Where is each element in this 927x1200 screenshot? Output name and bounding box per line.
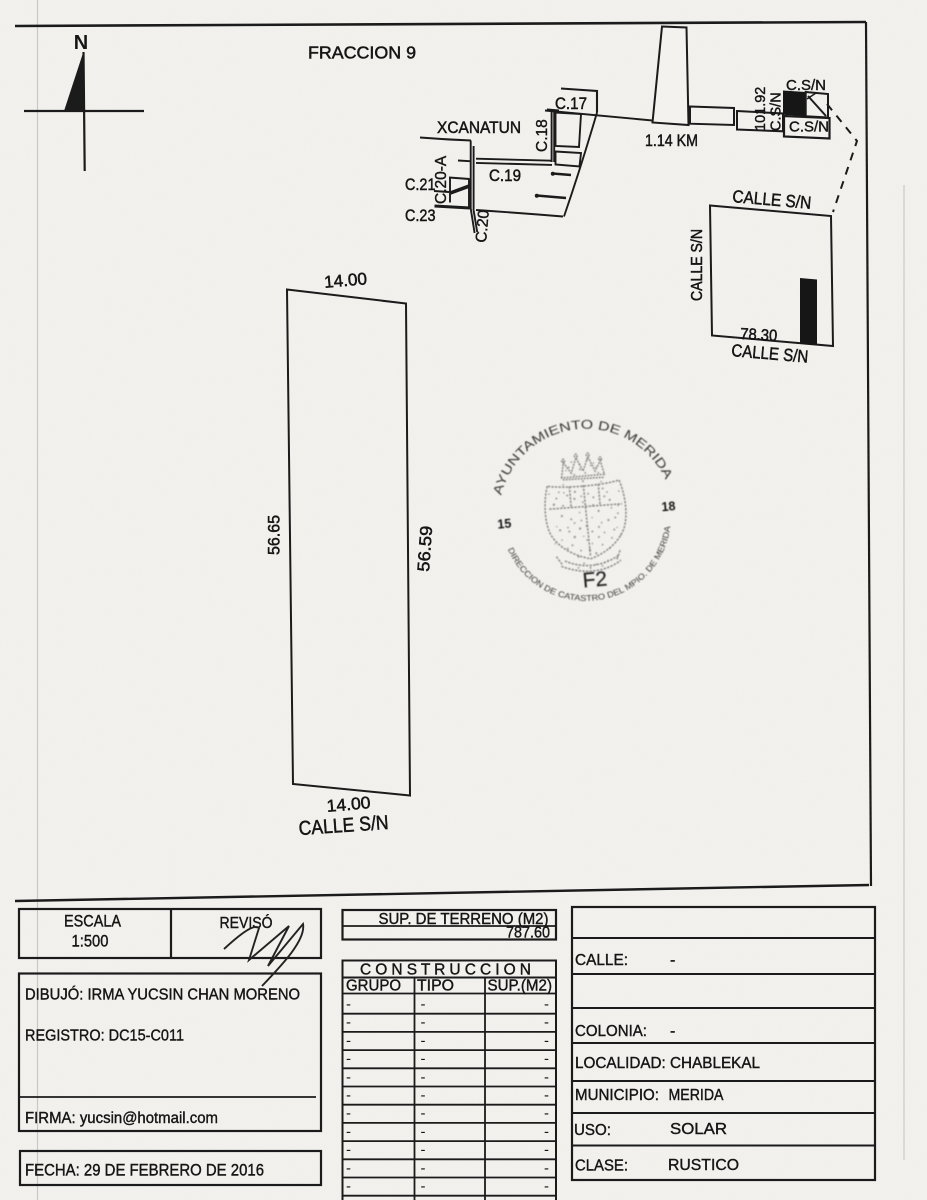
svg-text:56.65: 56.65 (265, 515, 284, 555)
svg-text:DIBUJÓ: IRMA YUCSIN CHAN MOREN: DIBUJÓ: IRMA YUCSIN CHAN MORENO (25, 985, 300, 1004)
svg-text:-: - (670, 952, 675, 969)
svg-text:-: - (421, 996, 426, 1013)
svg-text:RUSTICO: RUSTICO (668, 1157, 739, 1174)
svg-text:MUNICIPIO:: MUNICIPIO: (575, 1087, 659, 1104)
svg-text:-: - (670, 1023, 675, 1040)
svg-text:C.17: C.17 (555, 94, 587, 113)
svg-text:SUP.(M2): SUP.(M2) (488, 978, 553, 995)
svg-text:787.60: 787.60 (506, 925, 550, 942)
svg-text:-: - (346, 1160, 351, 1177)
svg-text:MERIDA: MERIDA (669, 1087, 724, 1104)
svg-text:1.14 KM: 1.14 KM (645, 132, 698, 150)
svg-text:-: - (346, 1032, 351, 1049)
svg-text:-: - (421, 1069, 426, 1086)
svg-text:C.19: C.19 (489, 166, 521, 185)
svg-text:-: - (346, 1178, 351, 1195)
svg-text:USO:: USO: (574, 1122, 611, 1139)
svg-text:ESCALA: ESCALA (64, 913, 121, 931)
svg-text:-: - (544, 1014, 549, 1031)
svg-text:-: - (421, 1014, 426, 1031)
svg-text:C.S/N: C.S/N (789, 119, 829, 136)
svg-text:C.20-A: C.20-A (433, 155, 450, 204)
svg-text:-: - (421, 1142, 426, 1159)
svg-text:-: - (544, 1123, 549, 1140)
svg-text:GRUPO: GRUPO (346, 978, 401, 995)
svg-text:-: - (346, 1069, 351, 1086)
svg-text:C.18: C.18 (534, 119, 551, 152)
svg-text:-: - (346, 996, 351, 1013)
svg-text:-: - (346, 1142, 351, 1159)
svg-text:-: - (544, 1069, 549, 1086)
svg-text:18: 18 (661, 499, 676, 514)
svg-text:C.S/N: C.S/N (769, 92, 785, 131)
svg-text:-: - (544, 1142, 549, 1159)
svg-text:-: - (544, 1032, 549, 1049)
svg-text:-: - (544, 1087, 549, 1104)
svg-text:-: - (346, 1051, 351, 1068)
svg-text:FRACCION 9: FRACCION 9 (308, 43, 416, 63)
svg-text:CLASE:: CLASE: (575, 1158, 628, 1175)
svg-text:-: - (544, 1178, 549, 1195)
svg-text:SOLAR: SOLAR (670, 1121, 727, 1138)
svg-text:15: 15 (497, 517, 512, 532)
svg-text:FIRMA: yucsin@hotmail.com: FIRMA: yucsin@hotmail.com (25, 1110, 218, 1127)
svg-text:TIPO: TIPO (417, 978, 454, 995)
svg-text:14.00: 14.00 (323, 269, 367, 292)
svg-text:REVISÓ: REVISÓ (220, 913, 273, 932)
svg-text:-: - (544, 1051, 549, 1068)
svg-text:-: - (421, 1123, 426, 1140)
svg-text:CALLE S/N: CALLE S/N (689, 229, 706, 301)
svg-text:FECHA: 29 DE FEBRERO DE 2016: FECHA: 29 DE FEBRERO DE 2016 (25, 1162, 264, 1180)
svg-text:REGISTRO: DC15-C011: REGISTRO: DC15-C011 (25, 1028, 184, 1045)
svg-text:-: - (421, 1032, 426, 1049)
svg-text:-: - (421, 1160, 426, 1177)
svg-text:14.00: 14.00 (326, 793, 371, 816)
svg-text:C.21: C.21 (405, 175, 436, 194)
svg-text:C.S/N: C.S/N (786, 77, 826, 94)
svg-text:-: - (346, 1014, 351, 1031)
svg-text:-: - (346, 1087, 351, 1104)
svg-text:-: - (421, 1051, 426, 1068)
svg-text:LOCALIDAD: CHABLEKAL: LOCALIDAD: CHABLEKAL (575, 1055, 760, 1072)
svg-text:-: - (544, 1160, 549, 1177)
svg-text:-: - (421, 1087, 426, 1104)
svg-text:-: - (421, 1178, 426, 1195)
svg-text:-: - (346, 1123, 351, 1140)
svg-text:C.23: C.23 (405, 206, 436, 225)
svg-text:-: - (544, 1105, 549, 1122)
svg-text:CALLE:: CALLE: (575, 952, 628, 969)
svg-text:1:500: 1:500 (72, 933, 109, 951)
svg-text:C.20: C.20 (473, 209, 493, 243)
svg-text:XCANATUN: XCANATUN (437, 118, 521, 137)
svg-text:COLONIA:: COLONIA: (575, 1023, 647, 1040)
svg-text:-: - (544, 996, 549, 1013)
svg-text:C O N S T R U C C I O N: C O N S T R U C C I O N (360, 962, 531, 979)
svg-text:56.59: 56.59 (414, 525, 436, 572)
svg-text:-: - (346, 1105, 351, 1122)
svg-text:-: - (421, 1105, 426, 1122)
svg-text:N: N (74, 32, 88, 54)
svg-text:101.92: 101.92 (753, 87, 769, 131)
